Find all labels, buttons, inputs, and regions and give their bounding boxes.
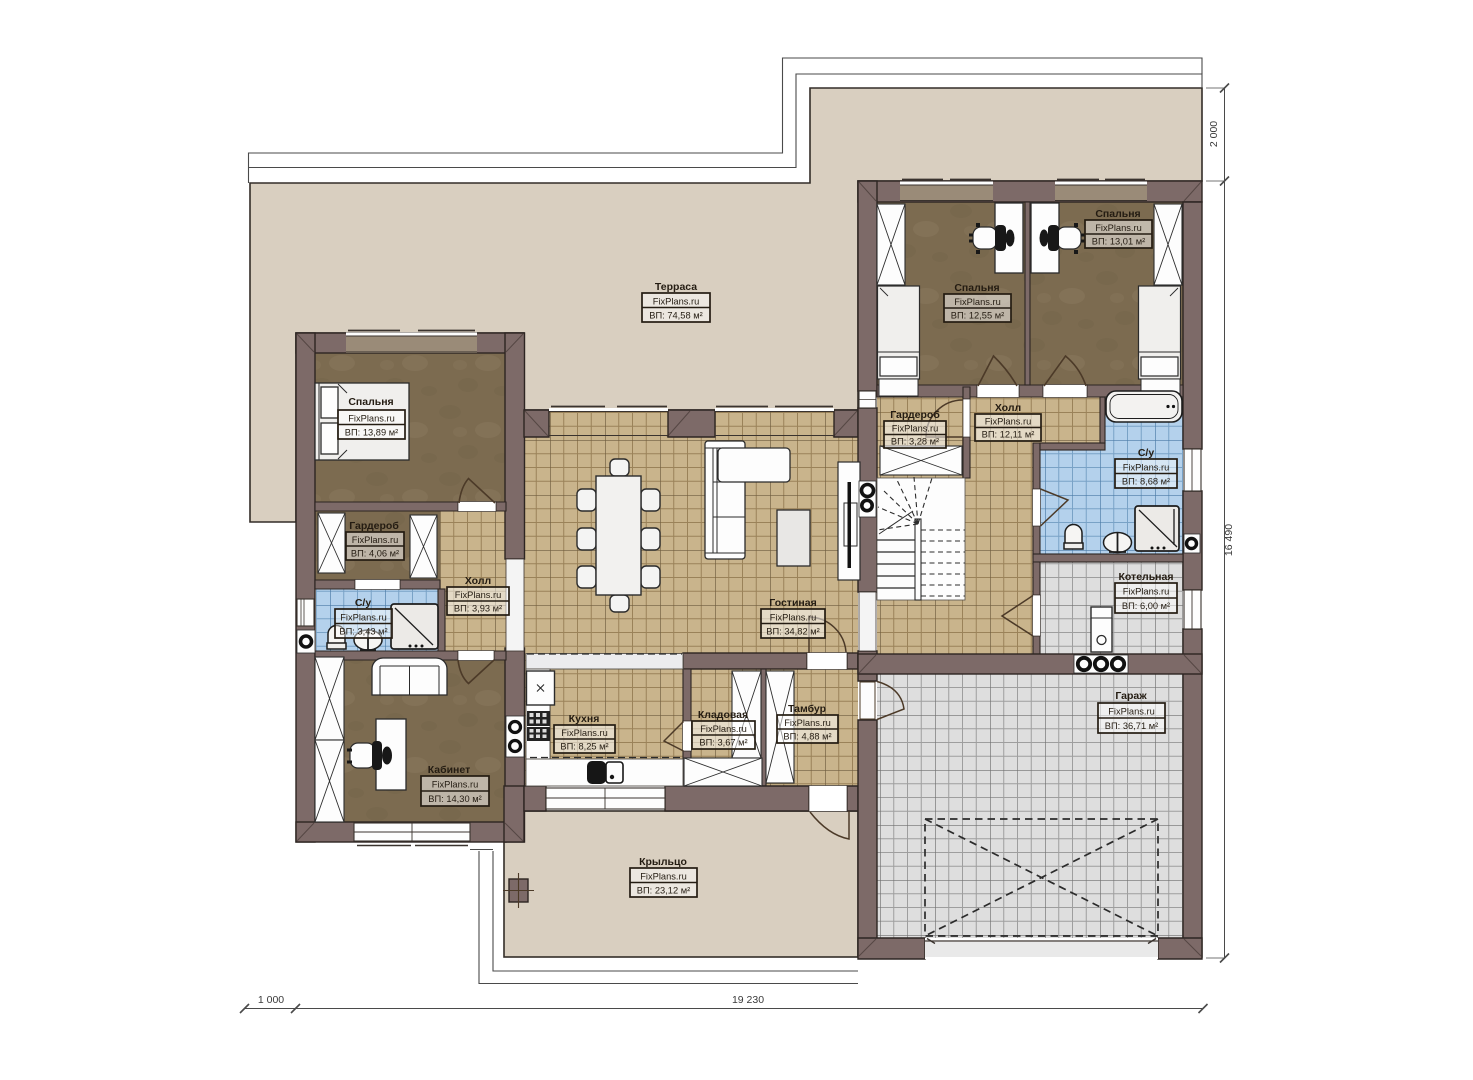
svg-text:16 490: 16 490 [1223,524,1235,556]
svg-text:ВП: 36,71 м²: ВП: 36,71 м² [1105,721,1158,731]
svg-text:ВП: 3,28 м²: ВП: 3,28 м² [891,437,939,447]
svg-text:FixPlans.ru: FixPlans.ru [892,424,939,434]
svg-text:FixPlans.ru: FixPlans.ru [1123,463,1170,473]
svg-text:FixPlans.ru: FixPlans.ru [1095,223,1142,233]
svg-text:Терраса: Терраса [655,281,697,293]
svg-text:FixPlans.ru: FixPlans.ru [770,613,817,623]
svg-text:FixPlans.ru: FixPlans.ru [653,297,700,307]
svg-text:С/у: С/у [355,597,372,609]
svg-text:ВП: 13,01 м²: ВП: 13,01 м² [1092,237,1145,247]
svg-text:Кабинет: Кабинет [428,764,471,776]
svg-text:FixPlans.ru: FixPlans.ru [1108,707,1155,717]
svg-text:Тамбур: Тамбур [788,703,826,715]
svg-text:Гардероб: Гардероб [349,520,399,532]
svg-text:ВП: 6,00 м²: ВП: 6,00 м² [1122,601,1170,611]
svg-text:FixPlans.ru: FixPlans.ru [700,724,747,734]
svg-text:FixPlans.ru: FixPlans.ru [640,872,687,882]
svg-text:Гостиная: Гостиная [769,597,816,609]
svg-text:ВП: 4,06 м²: ВП: 4,06 м² [351,549,399,559]
svg-text:ВП: 4,88 м²: ВП: 4,88 м² [783,732,831,742]
svg-text:FixPlans.ru: FixPlans.ru [985,417,1032,427]
svg-text:Холл: Холл [995,402,1021,414]
svg-text:ВП: 12,11 м²: ВП: 12,11 м² [982,430,1035,440]
svg-text:FixPlans.ru: FixPlans.ru [348,414,395,424]
svg-text:FixPlans.ru: FixPlans.ru [561,728,608,738]
svg-text:ВП: 23,12 м²: ВП: 23,12 м² [637,886,690,896]
svg-text:ВП: 3,43 м²: ВП: 3,43 м² [339,627,387,637]
svg-text:FixPlans.ru: FixPlans.ru [432,780,479,790]
svg-text:Котельная: Котельная [1119,571,1174,583]
svg-text:FixPlans.ru: FixPlans.ru [340,613,387,623]
svg-text:ВП: 13,89 м²: ВП: 13,89 м² [345,428,398,438]
svg-text:ВП: 34,82 м²: ВП: 34,82 м² [766,627,819,637]
svg-text:ВП: 8,25 м²: ВП: 8,25 м² [560,742,608,752]
svg-text:С/у: С/у [1138,447,1155,459]
svg-text:2 000: 2 000 [1208,121,1220,147]
svg-text:19 230: 19 230 [732,994,764,1006]
svg-text:ВП: 12,55 м²: ВП: 12,55 м² [951,311,1004,321]
svg-text:Гардероб: Гардероб [890,409,940,421]
svg-text:ВП: 14,30 м²: ВП: 14,30 м² [428,794,481,804]
svg-text:FixPlans.ru: FixPlans.ru [954,297,1001,307]
svg-text:1 000: 1 000 [258,994,284,1006]
svg-text:FixPlans.ru: FixPlans.ru [784,718,831,728]
svg-text:Холл: Холл [465,575,491,587]
svg-text:Кладовая: Кладовая [698,709,748,721]
svg-text:Спальня: Спальня [1095,208,1140,220]
svg-text:ВП: 8,68 м²: ВП: 8,68 м² [1122,477,1170,487]
svg-text:Спальня: Спальня [348,396,393,408]
svg-text:FixPlans.ru: FixPlans.ru [1123,587,1170,597]
svg-text:Кухня: Кухня [569,713,600,725]
svg-text:Гараж: Гараж [1115,690,1147,702]
svg-text:FixPlans.ru: FixPlans.ru [455,590,502,600]
svg-text:ВП: 74,58 м²: ВП: 74,58 м² [649,311,702,321]
svg-text:Крыльцо: Крыльцо [639,856,687,868]
svg-text:ВП: 3,67 м²: ВП: 3,67 м² [699,738,747,748]
svg-text:ВП: 3,93 м²: ВП: 3,93 м² [454,604,502,614]
svg-text:Спальня: Спальня [954,282,999,294]
svg-text:FixPlans.ru: FixPlans.ru [352,535,399,545]
